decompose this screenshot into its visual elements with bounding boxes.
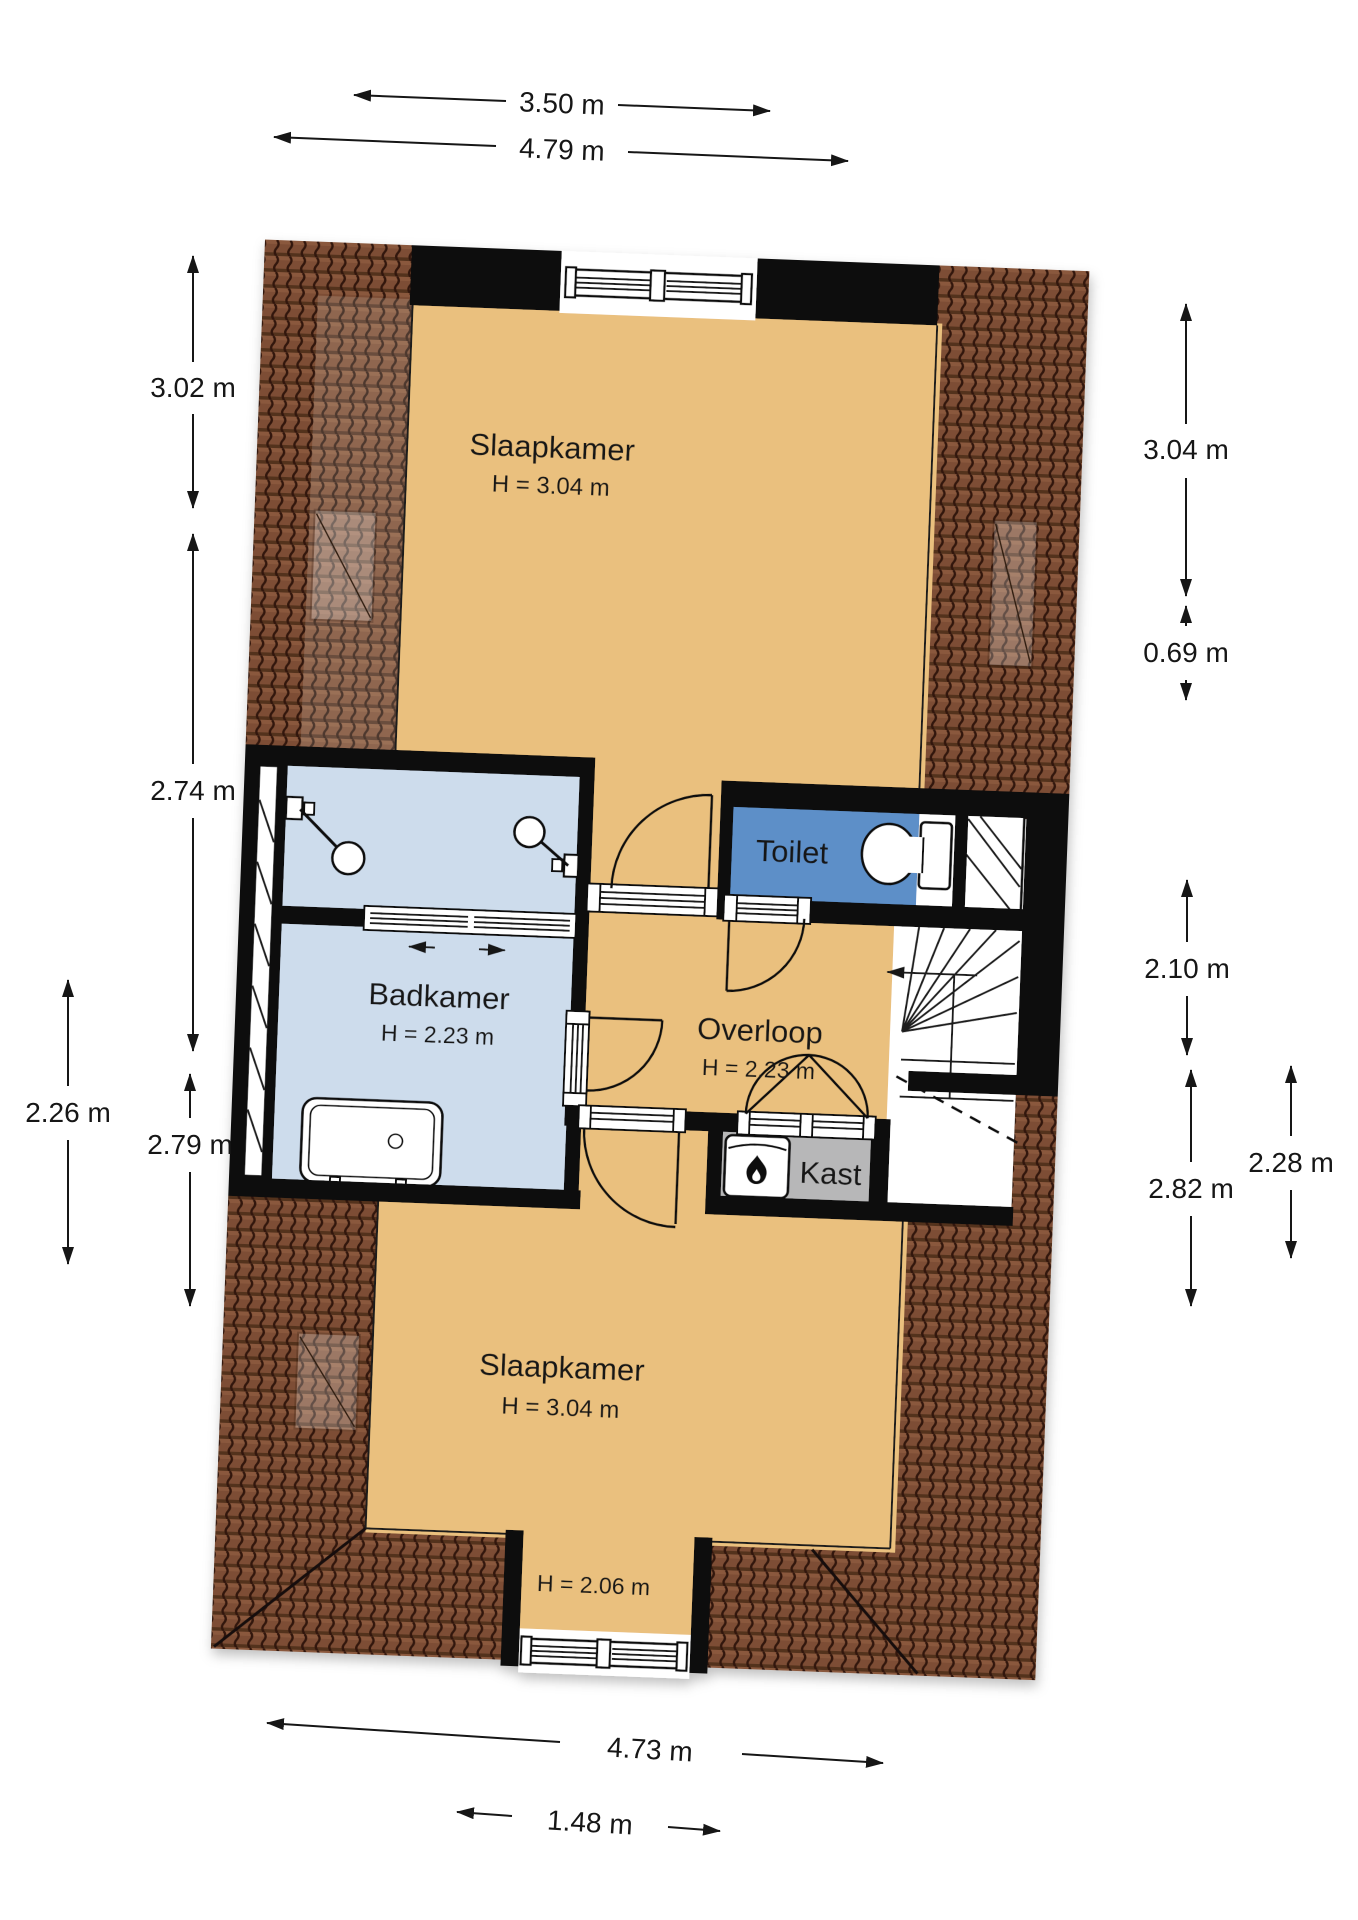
label-dormer-height: H = 2.06 m — [537, 1570, 651, 1600]
roof-window-right — [988, 520, 1038, 668]
dim-left-lower-outer: 2.26 m — [25, 980, 111, 1264]
floorplan-page: Slaapkamer H = 3.04 m Toilet Badkamer H … — [0, 0, 1358, 1920]
dim-text: 3.02 m — [150, 372, 236, 403]
dim-top-inner: 3.50 m — [354, 86, 770, 120]
room-bathroom — [228, 744, 595, 1207]
wall-top-left — [410, 245, 562, 311]
label-bedroom-top: Slaapkamer — [469, 427, 636, 468]
wall-top-right — [755, 258, 939, 325]
dim-bottom-inner: 1.48 m — [457, 1804, 720, 1840]
dim-text: 0.69 m — [1143, 637, 1229, 668]
label-bathroom: Badkamer — [368, 976, 511, 1016]
window-top — [559, 251, 757, 320]
dim-text: 4.79 m — [519, 132, 606, 166]
label-bedroom-bottom-height: H = 3.04 m — [501, 1392, 620, 1424]
label-closet: Kast — [799, 1155, 863, 1192]
dim-right-lower-inner: 2.28 m — [1248, 1066, 1334, 1258]
dim-text: 2.10 m — [1144, 953, 1230, 984]
dim-text: 3.50 m — [519, 86, 606, 120]
dim-text: 3.04 m — [1143, 434, 1229, 465]
dim-left-upper: 3.02 m — [150, 256, 236, 508]
dim-text: 2.28 m — [1248, 1147, 1334, 1178]
dim-bottom-outer: 4.73 m — [267, 1723, 883, 1768]
dim-right-upper: 3.04 m — [1143, 304, 1229, 596]
label-bathroom-height: H = 2.23 m — [381, 1020, 495, 1050]
label-bedroom-top-height: H = 3.04 m — [491, 470, 610, 502]
slide-left-arrow — [409, 947, 435, 948]
floor-plan: Slaapkamer H = 3.04 m Toilet Badkamer H … — [210, 240, 1089, 1693]
dim-text: 2.82 m — [1148, 1173, 1234, 1204]
dim-right-stairs: 2.10 m — [1144, 880, 1230, 1055]
stair-landing-hatch — [960, 814, 1024, 920]
heater — [724, 1135, 790, 1198]
dim-text: 4.73 m — [606, 1731, 693, 1767]
roof-window-left-lower — [294, 1333, 360, 1431]
dim-top-outer: 4.79 m — [274, 132, 848, 166]
dim-text: 2.79 m — [147, 1129, 233, 1160]
roof-window-left-upper — [310, 510, 376, 622]
slide-right-arrow — [479, 949, 505, 950]
label-landing: Overloop — [696, 1011, 823, 1051]
dim-left-middle: 2.74 m — [150, 534, 236, 1051]
dim-text: 2.74 m — [150, 775, 236, 806]
floorplan-svg: Slaapkamer H = 3.04 m Toilet Badkamer H … — [0, 0, 1358, 1920]
label-landing-height: H = 2.23 m — [702, 1054, 816, 1084]
dim-text: 2.26 m — [25, 1097, 111, 1128]
label-toilet: Toilet — [755, 833, 829, 871]
dim-text: 1.48 m — [546, 1804, 633, 1840]
dim-left-lower: 2.79 m — [147, 1074, 233, 1306]
dim-right-lower: 2.82 m — [1148, 1070, 1234, 1306]
label-bedroom-bottom: Slaapkamer — [479, 1347, 646, 1388]
dim-right-toilet: 0.69 m — [1143, 606, 1229, 700]
